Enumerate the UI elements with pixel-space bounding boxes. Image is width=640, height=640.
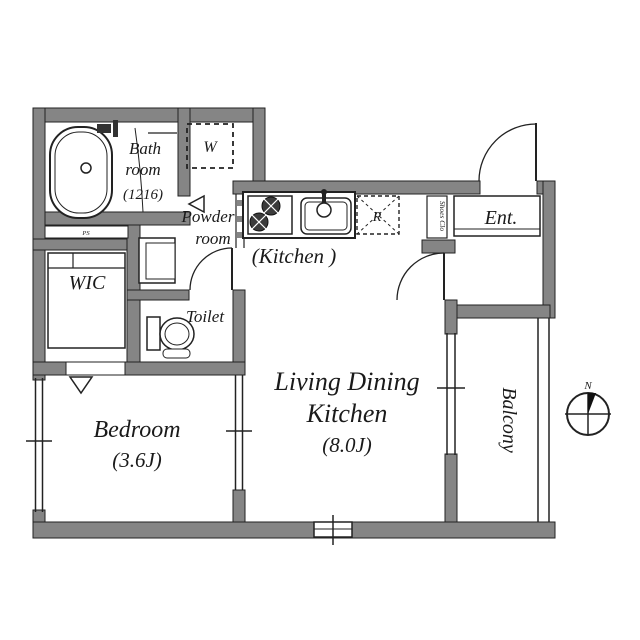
bathroom-label-1: Bath	[129, 139, 161, 158]
balcony-label: Balcony	[498, 387, 520, 453]
bedroom-sliding-door-icon	[226, 375, 252, 490]
bedroom-window-icon	[26, 378, 52, 512]
floor-plan: N Bath room (1216) W Powder room PS WIC …	[0, 0, 640, 640]
compass-icon: N	[565, 380, 611, 435]
washbasin-icon	[139, 238, 175, 283]
ldk-label-2: Kitchen	[306, 399, 388, 428]
washer-label: W	[203, 139, 218, 156]
fridge-label: R	[372, 210, 382, 225]
balcony-window-icon	[437, 333, 465, 455]
kitchen-label: (Kitchen )	[252, 244, 337, 268]
bathroom-label-2: room	[125, 160, 160, 179]
bathroom-label-3: (1216)	[123, 187, 163, 203]
compass-north-label: N	[583, 380, 592, 392]
ldk-label-1: Living Dining	[273, 367, 419, 396]
wic-label: WIC	[69, 272, 106, 294]
toilet-label: Toilet	[186, 307, 225, 326]
entrance-label: Ent.	[484, 207, 518, 229]
floor-plan-page: N Bath room (1216) W Powder room PS WIC …	[0, 0, 640, 640]
bedroom-label-2: (3.6J)	[112, 448, 162, 472]
wic-closet-icon	[48, 253, 125, 348]
shoes-closet-label: Shoes Clo	[438, 201, 447, 231]
bedroom-label-1: Bedroom	[93, 417, 180, 443]
ldk-label-3: (8.0J)	[322, 433, 372, 457]
toilet-door-icon	[190, 248, 232, 290]
balcony-railing-icon	[538, 318, 549, 522]
powder-room-label-2: room	[195, 229, 230, 248]
bottom-window-icon	[314, 515, 352, 545]
ps-label: PS	[81, 230, 90, 237]
wic-opening-icon	[66, 362, 125, 393]
entrance-door-icon	[479, 123, 536, 181]
powder-room-label-1: Powder	[181, 207, 235, 226]
hall-door-icon	[397, 253, 444, 300]
